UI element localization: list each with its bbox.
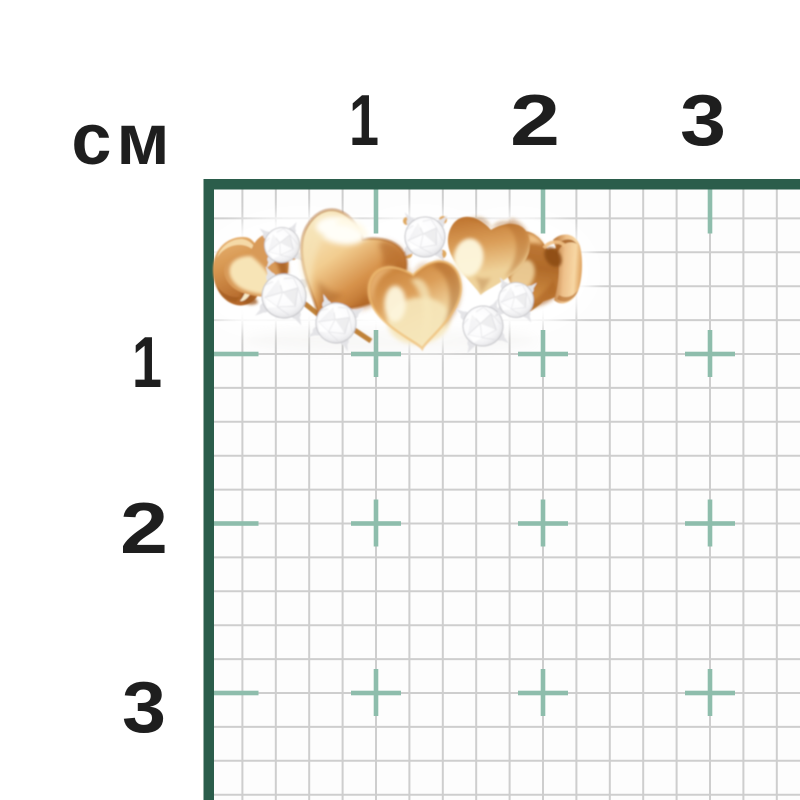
svg-text:см: см [71,100,174,180]
svg-text:2: 2 [510,81,560,161]
svg-text:1: 1 [132,323,162,403]
svg-text:2: 2 [120,489,168,569]
svg-text:1: 1 [349,81,379,161]
svg-text:3: 3 [680,81,726,161]
svg-text:3: 3 [122,668,166,748]
